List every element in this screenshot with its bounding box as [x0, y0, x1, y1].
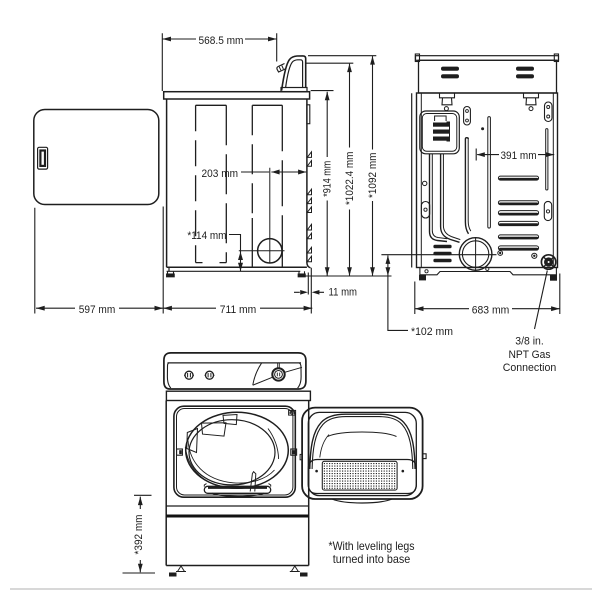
svg-text:597 mm: 597 mm: [79, 304, 116, 316]
svg-text:683 mm: 683 mm: [472, 304, 510, 316]
svg-text:turned into base: turned into base: [333, 552, 411, 566]
svg-text:*914 mm: *914 mm: [322, 161, 334, 197]
svg-text:NPT Gas: NPT Gas: [509, 349, 551, 361]
svg-text:*With leveling legs: *With leveling legs: [329, 539, 415, 553]
svg-text:*1092 mm: *1092 mm: [367, 153, 379, 199]
svg-text:711 mm: 711 mm: [220, 304, 257, 316]
svg-text:*392 mm: *392 mm: [133, 515, 145, 555]
svg-text:391 mm: 391 mm: [501, 150, 537, 162]
svg-text:568.5 mm: 568.5 mm: [199, 35, 244, 47]
svg-text:*1022.4 mm: *1022.4 mm: [344, 152, 356, 206]
svg-text:Connection: Connection: [503, 362, 557, 374]
svg-text:11 mm: 11 mm: [329, 286, 358, 298]
svg-text:3/8 in.: 3/8 in.: [515, 336, 544, 348]
svg-text:203 mm: 203 mm: [202, 168, 239, 180]
svg-text:*114 mm: *114 mm: [187, 230, 226, 242]
svg-text:*102 mm: *102 mm: [411, 326, 453, 338]
